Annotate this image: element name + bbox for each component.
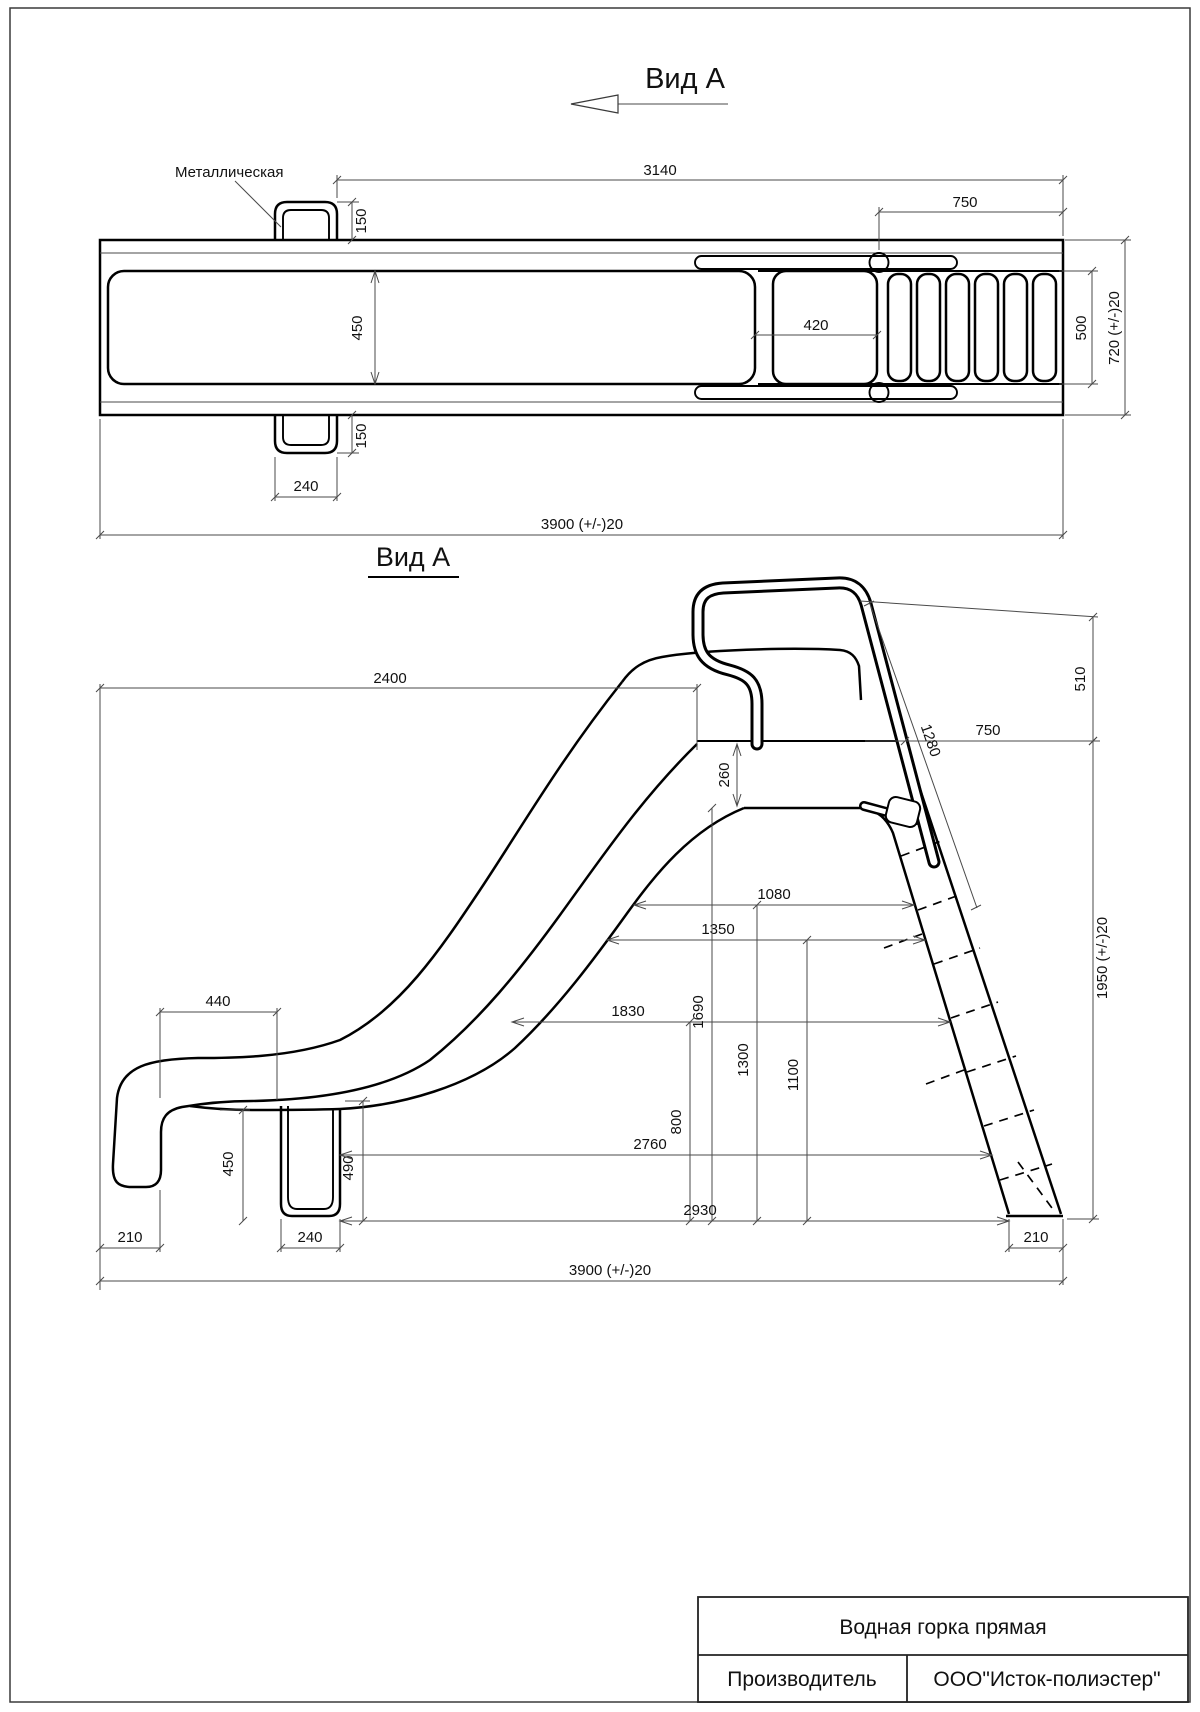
product-name: Водная горка прямая xyxy=(839,1616,1046,1639)
dim-510: 510 xyxy=(1072,666,1089,691)
slide-body-outline xyxy=(100,240,1063,415)
flume-profile xyxy=(113,682,697,1187)
dim-3140: 3140 xyxy=(643,162,676,179)
drawing-sheet: Вид А xyxy=(0,0,1200,1712)
dim-750-top: 750 xyxy=(952,194,977,211)
dim-450-top-view: 450 xyxy=(349,315,366,340)
dim-420: 420 xyxy=(803,317,828,334)
dim-490: 490 xyxy=(340,1155,357,1180)
dim-260: 260 xyxy=(716,762,733,787)
frame-back-stringer xyxy=(905,744,1061,1214)
flume-underside xyxy=(190,808,744,1110)
dim-750-side: 750 xyxy=(975,722,1000,739)
material-leader-line xyxy=(235,181,281,227)
manufacturer-value: ООО"Исток-полиэстер" xyxy=(933,1668,1160,1691)
dim-210-left: 210 xyxy=(117,1229,142,1246)
metal-handle-top xyxy=(275,202,337,240)
dim-1830: 1830 xyxy=(611,1003,644,1020)
view-a-arrow-label: Вид А xyxy=(571,63,728,113)
view-a-side-title: Вид А xyxy=(368,542,459,577)
view-arrow-head-icon xyxy=(571,95,618,113)
dim-2930: 2930 xyxy=(683,1202,716,1219)
side-view-title-text: Вид А xyxy=(376,542,450,572)
dim-150-bottom: 150 xyxy=(353,423,370,448)
dim-2400: 2400 xyxy=(373,670,406,687)
handrail-tube xyxy=(698,583,934,862)
dim-1080: 1080 xyxy=(757,886,790,903)
dim-3900-top: 3900 (+/-)20 xyxy=(541,516,623,533)
dim-210-right: 210 xyxy=(1023,1229,1048,1246)
material-note: Металлическая xyxy=(175,164,283,181)
dim-450-side: 450 xyxy=(220,1151,237,1176)
top-view-drawing: Металлическая xyxy=(100,164,1063,453)
dim-2760: 2760 xyxy=(633,1136,666,1153)
view-a-top-title: Вид А xyxy=(645,63,726,95)
dim-720: 720 (+/-)20 xyxy=(1106,291,1123,365)
dim-240-side: 240 xyxy=(297,1229,322,1246)
side-view-drawing xyxy=(113,583,1063,1216)
ladder-treads-hidden xyxy=(884,840,1052,1208)
flume-surface xyxy=(108,271,755,384)
dim-500: 500 xyxy=(1073,315,1090,340)
dim-440: 440 xyxy=(205,993,230,1010)
dim-1100: 1100 xyxy=(785,1059,802,1091)
manufacturer-label: Производитель xyxy=(727,1668,877,1691)
ladder-rungs xyxy=(888,274,1056,381)
dim-1350: 1350 xyxy=(701,921,734,938)
metal-handle-bottom xyxy=(275,415,337,453)
dim-1690: 1690 xyxy=(690,995,707,1028)
dim-150-top: 150 xyxy=(353,208,370,233)
sheet-border xyxy=(10,8,1190,1702)
dim-800: 800 xyxy=(668,1109,685,1134)
support-leg xyxy=(281,1106,340,1216)
title-block: Водная горка прямая Производитель ООО"Ис… xyxy=(698,1597,1188,1702)
dim-1950-value: 1950 (+/-)20 xyxy=(1094,917,1111,999)
dim-240-top: 240 xyxy=(293,478,318,495)
dim-3900-side: 3900 (+/-)20 xyxy=(569,1262,651,1279)
dim-1300: 1300 xyxy=(735,1043,752,1076)
